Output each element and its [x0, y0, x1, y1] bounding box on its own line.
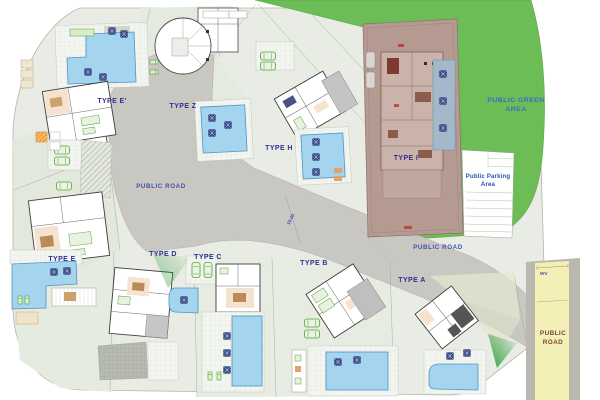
label-parking-line2: Area	[481, 182, 496, 188]
car-icon	[305, 330, 320, 338]
building-footprint	[216, 264, 260, 312]
label-public-road-west: PUBLIC ROAD	[136, 183, 186, 190]
lounger-icon	[150, 70, 158, 74]
label-public-road-east: PUBLIC ROAD	[413, 244, 463, 251]
car-icon	[55, 157, 70, 165]
label-type-b: TYPE B	[300, 260, 328, 267]
label-public-green-line2: AREA	[505, 106, 526, 113]
umbrella-icon	[85, 69, 92, 76]
dimension-box	[203, 11, 229, 18]
car-icon	[261, 52, 276, 60]
south-road	[526, 258, 580, 400]
pool	[201, 105, 247, 153]
label-south-road-line2: ROAD	[543, 339, 563, 346]
lounger-icon	[150, 60, 158, 64]
umbrella-icon	[464, 350, 471, 357]
terrace	[148, 342, 178, 380]
umbrella-icon	[224, 367, 231, 374]
lounger-icon	[18, 296, 22, 304]
car-icon	[204, 263, 212, 278]
pergola	[52, 288, 96, 306]
umbrella-icon	[100, 74, 107, 81]
label-wv-annotation: WV	[540, 271, 548, 276]
umbrella-icon	[225, 122, 232, 129]
umbrella-icon	[109, 28, 116, 35]
label-public-green-line1: PUBLIC GREEN	[487, 97, 544, 104]
type-i-terrace	[383, 170, 441, 198]
patio-deck	[98, 342, 148, 380]
pool	[232, 316, 262, 386]
label-type-e: TYPE E	[48, 256, 75, 263]
villa-type-i	[363, 19, 463, 237]
label-type-h: TYPE H	[265, 145, 293, 152]
site-plan-canvas: TYPE E' TYPE Z TYPE H TYPE I TYPE E TYPE…	[0, 0, 600, 400]
umbrella-icon	[447, 353, 454, 360]
umbrella-icon	[440, 71, 447, 78]
label-type-a: TYPE A	[398, 277, 425, 284]
lounger-icon	[217, 372, 221, 380]
umbrella-icon	[313, 169, 320, 176]
car-icon	[261, 62, 276, 70]
label-parking-line1: Public Parking	[466, 174, 511, 180]
building-footprint	[109, 268, 173, 339]
umbrella-icon	[313, 154, 320, 161]
umbrella-icon	[209, 115, 216, 122]
umbrella-icon	[335, 359, 342, 366]
umbrella-icon	[354, 357, 361, 364]
umbrella-icon	[181, 297, 188, 304]
umbrella-icon	[440, 125, 447, 132]
umbrella-icon	[121, 31, 128, 38]
ramp	[80, 140, 112, 198]
umbrella-icon	[313, 139, 320, 146]
umbrella-icon	[224, 333, 231, 340]
public-parking-area	[462, 150, 514, 238]
label-type-e-prime: TYPE E'	[97, 98, 126, 105]
car-icon	[57, 182, 72, 190]
umbrella-icon	[224, 350, 231, 357]
site-plan-drawing: TYPE E' TYPE Z TYPE H TYPE I TYPE E TYPE…	[0, 0, 600, 400]
label-type-c: TYPE C	[194, 254, 222, 261]
dimension-box	[229, 11, 247, 18]
outdoor-kitchen	[292, 350, 306, 392]
lounger-icon	[208, 372, 212, 380]
pool	[429, 364, 478, 390]
label-south-road-line1: PUBLIC	[540, 330, 566, 337]
umbrella-icon	[440, 98, 447, 105]
umbrella-icon	[64, 268, 71, 275]
umbrella-icon	[51, 269, 58, 276]
label-type-d: TYPE D	[149, 251, 177, 258]
car-icon	[192, 263, 200, 278]
umbrella-icon	[209, 130, 216, 137]
label-type-z: TYPE Z	[170, 103, 197, 110]
car-icon	[305, 319, 320, 327]
lounger-icon	[25, 296, 29, 304]
label-type-i: TYPE I	[394, 155, 419, 162]
